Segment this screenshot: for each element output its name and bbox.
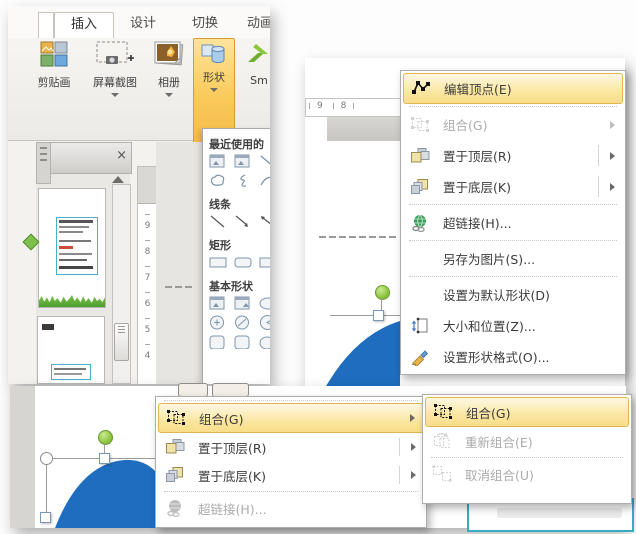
menu-item-send-to-back[interactable]: 置于底层(K) xyxy=(403,171,623,202)
resize-handle[interactable] xyxy=(373,310,384,321)
smartart-button[interactable]: Sm xyxy=(242,40,270,87)
tab-label: 动画 xyxy=(247,16,270,31)
text-smudge xyxy=(59,231,83,233)
menu-item-label: 重新组合(E) xyxy=(465,432,533,451)
tab-design[interactable]: 设计 xyxy=(120,12,166,38)
ribbon-body: 剪贴画 屏幕截图 xyxy=(8,38,270,141)
text-smudge xyxy=(42,324,54,330)
submenu-arrow-icon xyxy=(410,414,415,422)
ruler-number: 9 xyxy=(317,101,323,111)
send-to-back-icon xyxy=(410,178,430,196)
menu-item-label: 置于底层(K) xyxy=(443,177,511,196)
line-shape-icon[interactable] xyxy=(209,214,229,231)
tab-transitions[interactable]: 切换 xyxy=(182,12,228,38)
ribbon-tab-row: 插入 设计 切换 动画 xyxy=(8,6,270,39)
tab-stub[interactable] xyxy=(38,12,54,39)
rotation-handle[interactable] xyxy=(98,430,113,445)
slide-edge-bar xyxy=(327,117,400,141)
menu-item-group[interactable]: 组合(G) xyxy=(158,403,424,433)
screenshot-collage: 插入 设计 切换 动画 剪贴画 xyxy=(0,0,636,534)
tab-label: 切换 xyxy=(192,16,218,31)
menu-separator xyxy=(164,491,418,492)
screenshot-icon xyxy=(94,53,136,72)
submenu-arrow-icon xyxy=(610,121,615,129)
ruler-number: 8 xyxy=(341,101,347,111)
section-lines: 线条 xyxy=(209,196,270,212)
group-submenu: 组合(G) 重新组合(E) 取消组合(U) xyxy=(422,394,632,504)
chevron-down-icon xyxy=(210,88,218,92)
menu-item-label: 组合(G) xyxy=(199,409,243,428)
menu-item-label: 另存为图片(S)... xyxy=(443,249,535,268)
selection-line xyxy=(46,458,47,520)
thumbnail-text-block xyxy=(51,364,91,380)
text-smudge xyxy=(59,220,93,223)
cut-toolbar-button xyxy=(212,383,249,397)
blue-shape-partial[interactable] xyxy=(325,313,400,388)
menu-separator xyxy=(431,457,623,458)
split-divider xyxy=(598,176,599,197)
tab-insert[interactable]: 插入 xyxy=(54,12,114,39)
arc-shape-icon[interactable] xyxy=(259,173,270,190)
photo-album-label: 相册 xyxy=(148,74,190,90)
submenu-arrow-icon xyxy=(610,152,615,160)
group-menu-fragment: 组合(G) 置于顶层(R) 置于底层(K) xyxy=(10,386,626,528)
scribble-shape-icon[interactable] xyxy=(234,173,254,190)
rotation-handle[interactable] xyxy=(375,285,390,300)
freeform-shape-icon[interactable] xyxy=(209,173,229,190)
menu-separator xyxy=(409,204,617,205)
close-icon[interactable]: × xyxy=(116,149,127,163)
menu-separator xyxy=(409,240,617,241)
menu-item-label: 组合(G) xyxy=(443,115,487,134)
slides-pane-header: × xyxy=(50,142,132,174)
menu-separator xyxy=(409,106,617,107)
tab-label: 插入 xyxy=(71,17,97,32)
menu-item-label: 编辑顶点(E) xyxy=(444,79,512,98)
oval-shape-icon[interactable] xyxy=(259,296,270,313)
menu-item-label: 取消组合(U) xyxy=(465,465,534,484)
horizontal-ruler: 9 8 xyxy=(305,98,402,117)
chevron-down-icon xyxy=(111,93,119,97)
editing-area-background xyxy=(156,142,202,384)
screenshot-label: 屏幕截图 xyxy=(88,74,142,90)
text-smudge xyxy=(59,266,93,269)
snip-corner-rectangle-icon[interactable] xyxy=(259,255,270,272)
section-basic-shapes: 基本形状 xyxy=(209,278,270,294)
tab-animations[interactable]: 动画 xyxy=(240,12,270,38)
group-context-menu: 组合(G) 置于顶层(R) 置于底层(K) xyxy=(155,396,427,528)
circle-symbol-shape-icon[interactable] xyxy=(234,315,254,332)
text-smudge xyxy=(59,259,87,261)
menu-item-hyperlink[interactable]: 超链接(H)... xyxy=(403,207,623,238)
tab-label: 设计 xyxy=(130,16,156,31)
menu-item-format-shape[interactable]: 设置形状格式(O)... xyxy=(403,341,623,372)
circle-symbol-shape-icon[interactable] xyxy=(209,315,229,332)
menu-item-set-default-shape[interactable]: 设置为默认形状(D) xyxy=(403,279,623,310)
editing-area-background xyxy=(10,386,35,528)
outline-tab-fragment[interactable] xyxy=(36,142,51,184)
ribbon-fragment: 插入 设计 切换 动画 剪贴画 xyxy=(8,6,270,384)
menu-item-edit-points[interactable]: 编辑顶点(E) xyxy=(403,73,623,104)
arrow-line-icon[interactable] xyxy=(234,214,254,231)
slide-thumbnail-1[interactable] xyxy=(38,188,106,308)
thumbnail-text-block xyxy=(56,217,98,275)
chevron-down-icon xyxy=(165,93,173,97)
picture-shape-icon[interactable] xyxy=(209,154,229,171)
text-smudge-red xyxy=(59,246,73,249)
rounded-square-shape-icon[interactable] xyxy=(234,334,254,351)
submenu-item-ungroup[interactable]: 取消组合(U) xyxy=(425,460,629,488)
smartart-icon xyxy=(246,53,270,72)
text-smudge xyxy=(54,373,82,375)
group-icon xyxy=(433,403,453,421)
shapes-dropdown-panel: 最近使用的 线条 矩形 基本形状 xyxy=(202,128,270,384)
menu-item-label: 大小和位置(Z)... xyxy=(443,316,536,335)
hyperlink-icon xyxy=(165,499,185,517)
bring-to-front-icon xyxy=(410,147,430,165)
text-smudge xyxy=(59,240,91,242)
slide-thumbnail-2[interactable] xyxy=(37,316,105,384)
menu-item-label: 置于顶层(R) xyxy=(443,146,511,165)
vertical-scrollbar[interactable] xyxy=(112,184,131,384)
screenshot-button[interactable]: 屏幕截图 xyxy=(88,40,142,97)
clipart-label: 剪贴画 xyxy=(30,74,78,90)
menu-item-group[interactable]: 组合(G) xyxy=(403,109,623,140)
regroup-icon xyxy=(432,432,452,450)
menu-item-save-as-picture[interactable]: 另存为图片(S)... xyxy=(403,243,623,274)
ruler-number: 6 xyxy=(138,299,157,309)
rounded-rectangle-shape-icon[interactable] xyxy=(234,255,254,272)
rectangle-shape-icon[interactable] xyxy=(209,255,229,272)
text-smudge xyxy=(54,368,86,370)
grass-graphic xyxy=(39,295,105,307)
menu-item-bring-to-front[interactable]: 置于顶层(R) xyxy=(403,140,623,171)
split-divider xyxy=(399,438,400,456)
scroll-up-icon[interactable] xyxy=(112,176,124,183)
picture-shape-icon[interactable] xyxy=(209,296,229,313)
resize-handle[interactable] xyxy=(40,512,51,523)
split-divider xyxy=(598,145,599,166)
clipart-button[interactable]: 剪贴画 xyxy=(30,40,78,90)
ungroup-icon xyxy=(432,465,452,483)
ruler-number: 5 xyxy=(138,325,157,335)
edit-points-icon xyxy=(411,80,431,98)
menu-separator xyxy=(164,400,418,401)
scrollbar-thumb[interactable] xyxy=(114,323,129,361)
menu-item-send-to-back[interactable]: 置于底层(K) xyxy=(158,461,424,489)
clipart-icon xyxy=(39,53,69,72)
context-menu-fragment: 9 8 编辑顶点(E) 组合(G) xyxy=(305,58,625,388)
double-arrow-line-icon[interactable] xyxy=(259,214,270,231)
ruler-number: 8 xyxy=(138,247,157,257)
menu-item-label: 超链接(H)... xyxy=(443,213,512,232)
size-position-icon xyxy=(410,317,430,335)
section-rectangles: 矩形 xyxy=(209,237,270,253)
send-to-back-icon xyxy=(165,466,185,484)
menu-item-label: 设置为默认形状(D) xyxy=(443,285,550,304)
smartart-label: Sm xyxy=(242,74,270,87)
menu-item-hyperlink[interactable]: 超链接(H)... xyxy=(158,494,424,522)
oval-shape-icon[interactable] xyxy=(259,334,270,351)
photo-album-button[interactable]: 相册 xyxy=(148,40,190,97)
text-smudge xyxy=(59,253,92,255)
resize-handle[interactable] xyxy=(99,453,110,464)
submenu-arrow-icon xyxy=(411,443,416,451)
menu-item-label: 超链接(H)... xyxy=(198,499,267,518)
picture-shape-icon[interactable] xyxy=(234,296,254,313)
section-recent-shapes: 最近使用的 xyxy=(209,136,270,152)
group-icon xyxy=(410,116,430,134)
submenu-item-regroup[interactable]: 重新组合(E) xyxy=(425,427,629,455)
format-shape-icon xyxy=(410,348,430,366)
ruler-number: 9 xyxy=(138,221,157,231)
menu-item-label: 置于底层(K) xyxy=(198,466,266,485)
ruler-number: 4 xyxy=(138,351,157,361)
submenu-item-group[interactable]: 组合(G) xyxy=(425,397,629,427)
cut-toolbar-button xyxy=(178,383,208,397)
pie-shape-icon[interactable] xyxy=(259,315,270,332)
ruler-cap xyxy=(138,167,157,204)
group-icon xyxy=(166,409,186,427)
guide-dashes xyxy=(319,226,399,245)
selection-line xyxy=(330,315,400,316)
line-shape-icon[interactable] xyxy=(259,154,270,171)
bring-to-front-icon xyxy=(165,438,185,456)
ruler-number: 7 xyxy=(138,273,157,283)
corner-handle[interactable] xyxy=(40,452,53,465)
menu-item-label: 置于顶层(R) xyxy=(198,438,266,457)
menu-item-label: 组合(G) xyxy=(466,403,510,422)
submenu-arrow-icon xyxy=(610,183,615,191)
split-divider xyxy=(399,466,400,484)
photo-album-icon xyxy=(152,53,186,72)
picture-shape-icon[interactable] xyxy=(234,154,254,171)
shapes-icon xyxy=(200,43,228,73)
menu-item-label: 设置形状格式(O)... xyxy=(443,347,550,366)
rounded-square-shape-icon[interactable] xyxy=(209,334,229,351)
hyperlink-icon xyxy=(410,214,430,232)
text-smudge xyxy=(497,508,622,518)
menu-separator xyxy=(409,276,617,277)
menu-item-bring-to-front[interactable]: 置于顶层(R) xyxy=(158,433,424,461)
text-smudge xyxy=(59,226,89,228)
shape-context-menu: 编辑顶点(E) 组合(G) 置于顶层(R) 置于底层(K) xyxy=(400,70,626,375)
menu-item-size-and-position[interactable]: 大小和位置(Z)... xyxy=(403,310,623,341)
vertical-ruler: 9 8 7 6 5 4 xyxy=(137,166,158,384)
submenu-arrow-icon xyxy=(411,471,416,479)
guide-dashes xyxy=(165,276,195,295)
